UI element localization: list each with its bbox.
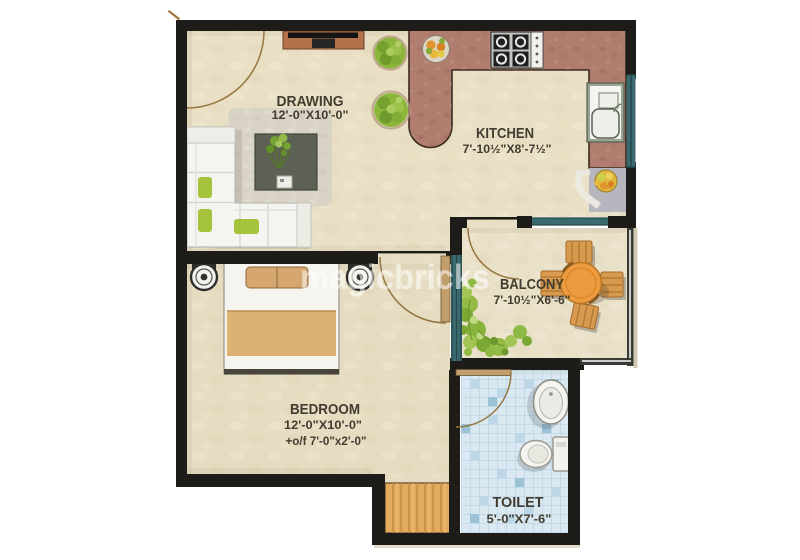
svg-text:magicbricks: magicbricks: [300, 258, 490, 297]
svg-text:5'-0"X7'-6": 5'-0"X7'-6": [487, 512, 552, 526]
svg-text:TOILET: TOILET: [493, 495, 544, 511]
svg-text:7'-10½"X8'-7½": 7'-10½"X8'-7½": [463, 142, 552, 156]
svg-text:7'-10½"X6'-6": 7'-10½"X6'-6": [494, 293, 571, 307]
svg-text:BEDROOM: BEDROOM: [290, 402, 360, 418]
svg-text:+o/f 7'-0"x2'-0": +o/f 7'-0"x2'-0": [286, 434, 367, 448]
svg-text:12'-0"X10'-0": 12'-0"X10'-0": [284, 418, 362, 432]
svg-text:12'-0"X10'-0": 12'-0"X10'-0": [272, 108, 349, 122]
svg-text:BALCONY: BALCONY: [500, 277, 564, 293]
svg-text:KITCHEN: KITCHEN: [476, 126, 534, 142]
